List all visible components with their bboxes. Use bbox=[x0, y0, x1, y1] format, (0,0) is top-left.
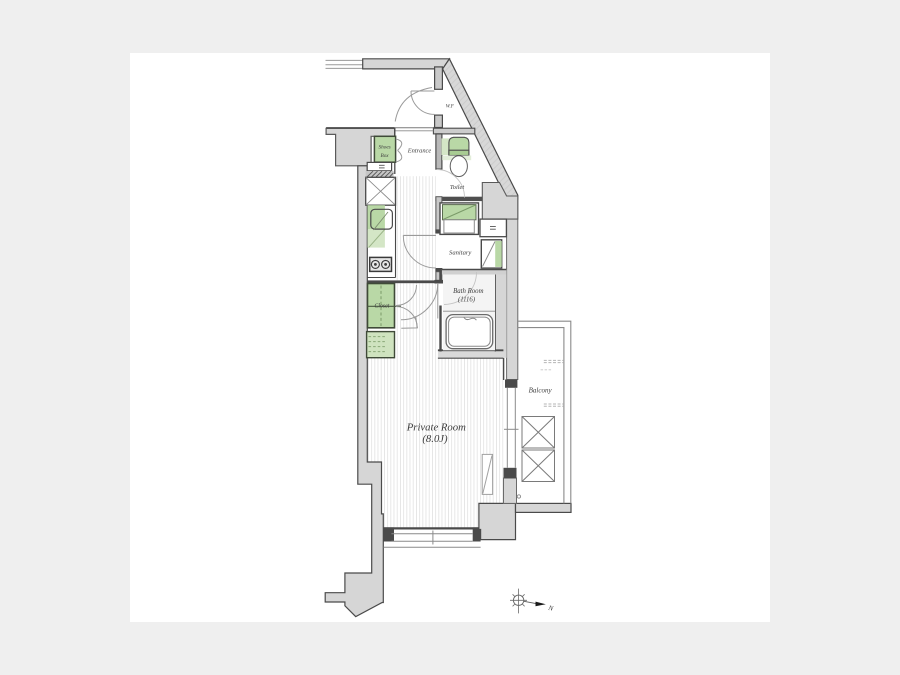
svg-text:Bath Room: Bath Room bbox=[453, 288, 483, 295]
svg-text:Sanitary: Sanitary bbox=[449, 249, 471, 256]
svg-text:Toilet: Toilet bbox=[450, 184, 465, 191]
svg-text:Box: Box bbox=[381, 153, 390, 159]
svg-text:(8.0J): (8.0J) bbox=[422, 433, 448, 445]
svg-text:W.F: W.F bbox=[446, 105, 455, 110]
svg-text:Closet: Closet bbox=[374, 303, 389, 309]
svg-text:Private Room: Private Room bbox=[406, 422, 466, 434]
svg-text:Balcony: Balcony bbox=[529, 386, 553, 394]
svg-text:Shoes: Shoes bbox=[379, 144, 391, 150]
svg-text:Entrance: Entrance bbox=[407, 147, 432, 154]
svg-text:(1116): (1116) bbox=[458, 296, 476, 303]
